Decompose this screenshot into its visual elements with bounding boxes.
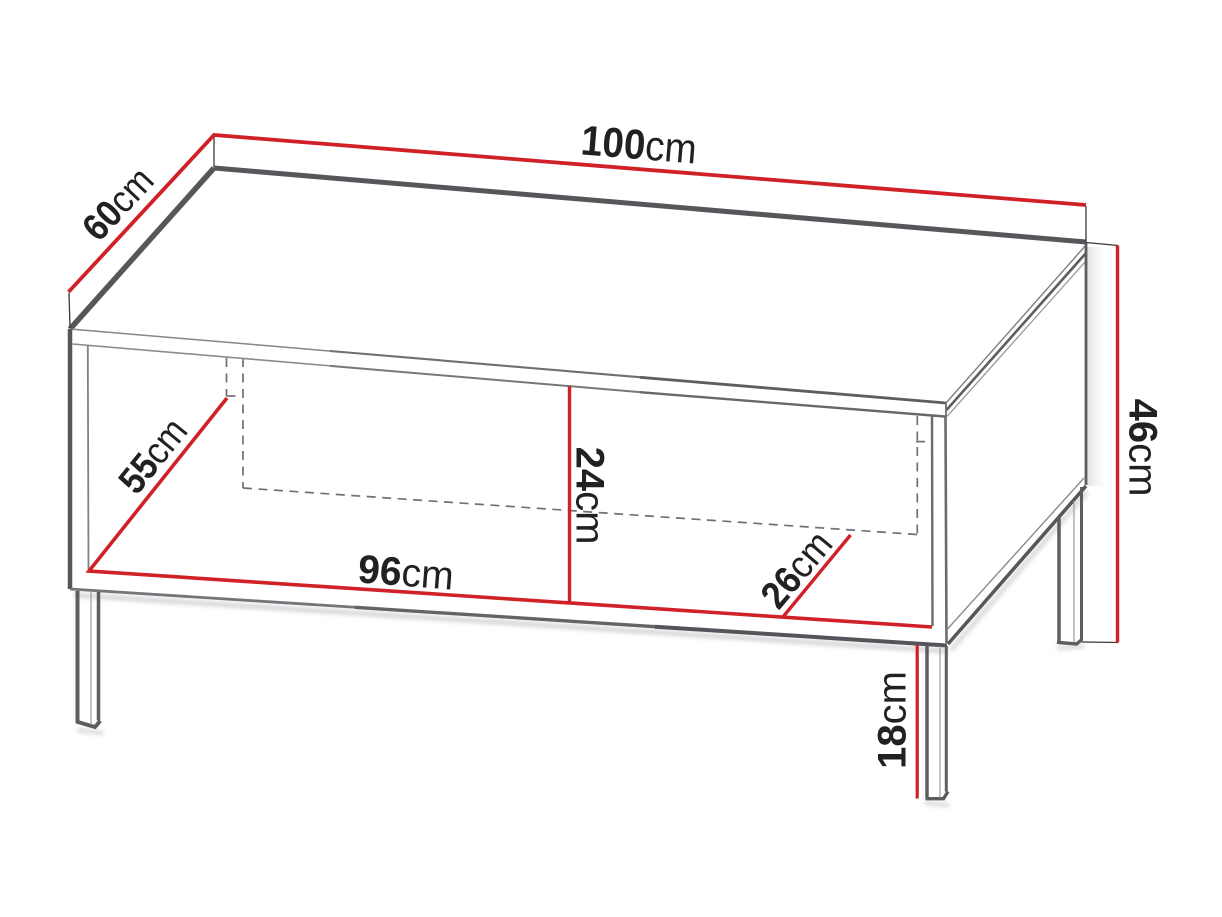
svg-text:26cm: 26cm xyxy=(752,523,840,617)
svg-text:46cm: 46cm xyxy=(1121,399,1165,497)
svg-text:24cm: 24cm xyxy=(568,447,612,545)
svg-text:96cm: 96cm xyxy=(356,547,455,599)
svg-text:100cm: 100cm xyxy=(579,116,698,173)
svg-text:18cm: 18cm xyxy=(871,671,915,769)
